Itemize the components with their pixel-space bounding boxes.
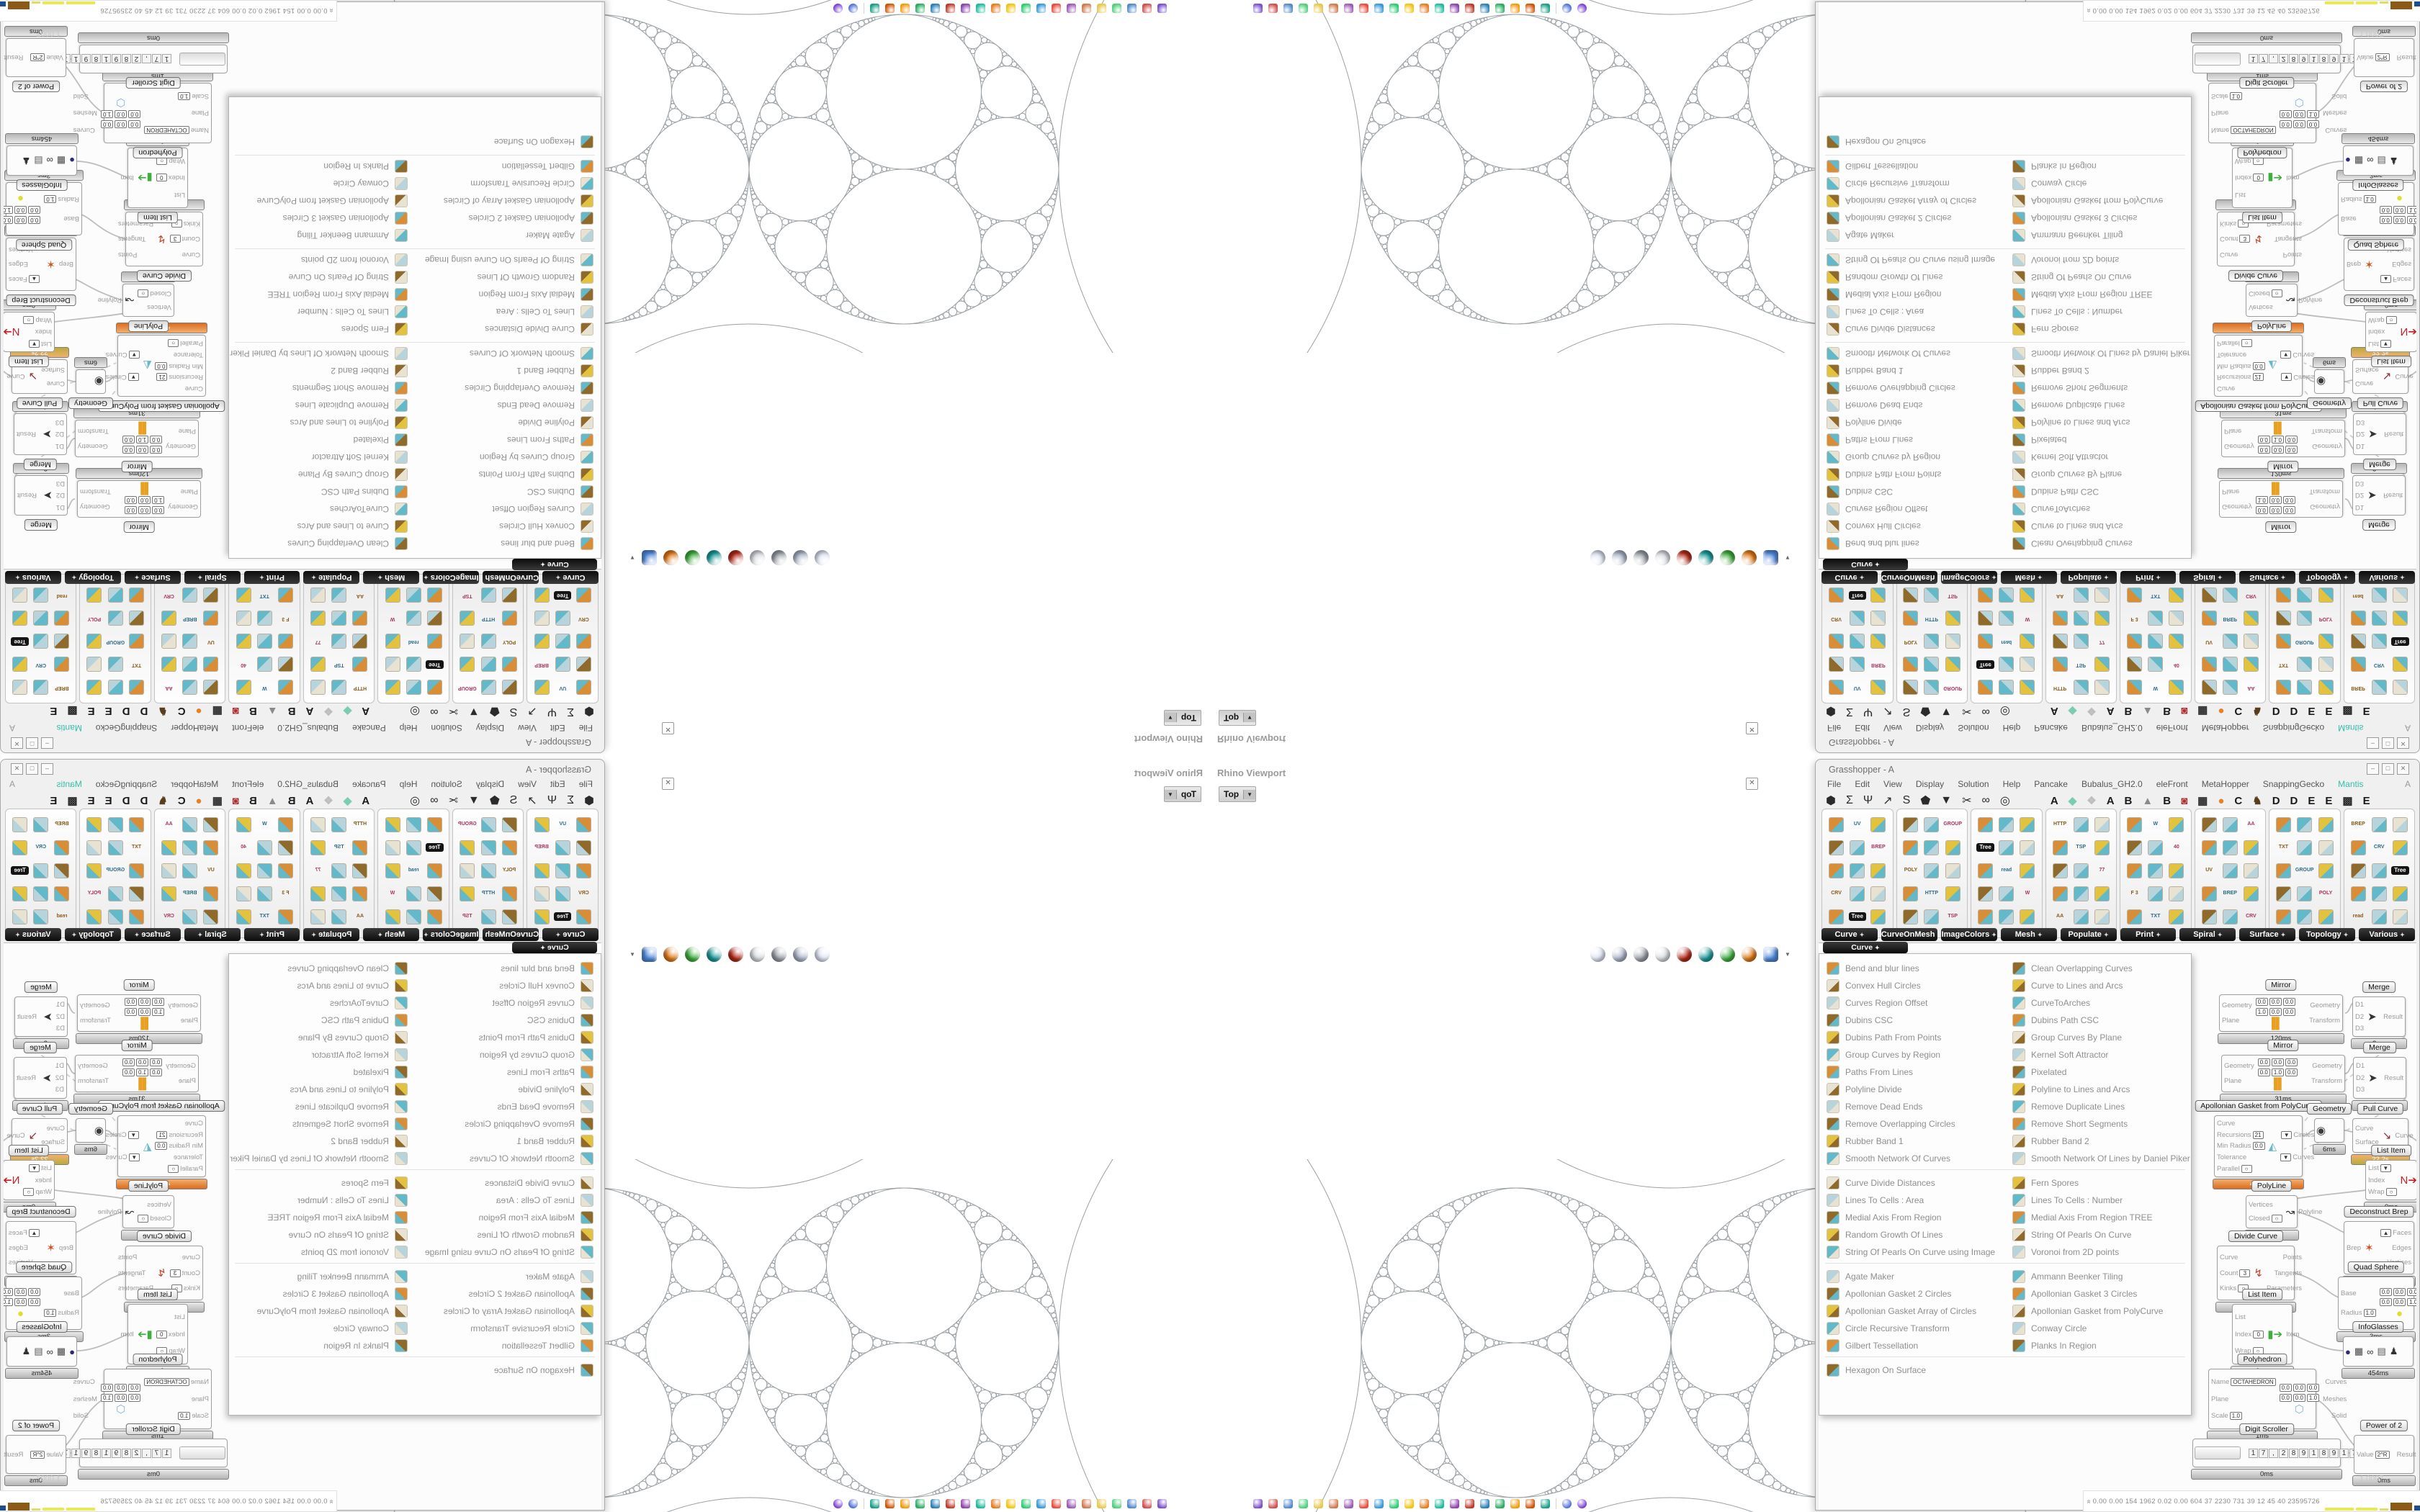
component-body[interactable]: NameOCTAHEDRONPlaneScale1.00.00.00.00.00…: [2208, 83, 2316, 143]
output-param[interactable]: Curves: [2325, 126, 2347, 134]
panel-tile-icon[interactable]: [2372, 909, 2387, 924]
gh-toolbar-icon-0[interactable]: ⬢: [584, 704, 594, 719]
panel-tile-icon[interactable]: [406, 657, 421, 672]
panel-tile-icon[interactable]: [2094, 840, 2110, 855]
panel-tile-icon[interactable]: [2094, 588, 2110, 603]
input-param[interactable]: Count3: [170, 235, 200, 243]
category-icon-5[interactable]: ▲: [267, 706, 278, 718]
input-param[interactable]: Radius1.0: [44, 1309, 79, 1317]
component-merge[interactable]: MergeD1D2D3➤Result2ms: [2352, 996, 2406, 1037]
panel-tile-icon[interactable]: [12, 886, 27, 901]
panel-tile-icon[interactable]: [2074, 634, 2089, 649]
output-param[interactable]: Tangents: [118, 1269, 146, 1277]
component-body[interactable]: ●▦∞▤♟: [6, 1336, 77, 1367]
xyz-value[interactable]: 0.0: [136, 446, 148, 454]
component-label[interactable]: Divide Curve: [137, 1230, 192, 1242]
tab-surface[interactable]: Surface ✦: [2239, 928, 2295, 941]
menu-item[interactable]: Conway Circle: [2012, 175, 2192, 192]
menu-item[interactable]: Paths From Lines: [413, 1063, 593, 1081]
category-icon-12[interactable]: D: [140, 706, 148, 718]
panel-tile-text[interactable]: F 3: [281, 615, 290, 622]
menu-edit[interactable]: Edit: [550, 723, 565, 733]
panel-tile-text[interactable]: UV: [207, 638, 215, 645]
panel-tile-icon[interactable]: [2202, 817, 2217, 832]
taskbar-app-icon-10[interactable]: [1404, 4, 1414, 13]
xyz-value[interactable]: 0.0: [14, 207, 27, 215]
panel-tile-icon[interactable]: [2276, 863, 2291, 878]
input-param[interactable]: Geometry: [166, 1062, 196, 1070]
panel-tile-icon[interactable]: [2393, 886, 2408, 901]
param-value[interactable]: OCTAHEDRON: [144, 1378, 189, 1386]
panel-tile-icon[interactable]: [1903, 817, 1918, 832]
xyz-value[interactable]: 0.0: [2269, 507, 2282, 515]
component-body[interactable]: GeometryPlane0.00.00.01.00.00.0▐▌Geometr…: [77, 480, 201, 518]
category-icon-15[interactable]: E: [2325, 795, 2332, 807]
menu-item[interactable]: Remove Overlapping Circles: [413, 379, 593, 397]
category-icon-8[interactable]: ▦: [2197, 794, 2208, 807]
tab-topology[interactable]: Topology ✦: [65, 571, 121, 584]
component-label[interactable]: Apollonian Gasket from PolyCurve: [2195, 400, 2322, 412]
taskbar-end-icon-1[interactable]: [833, 1499, 843, 1508]
menu-item[interactable]: Circle Recursive Transform: [1827, 175, 2007, 192]
menu-item[interactable]: Smooth Network Of Lines by Daniel Piker: [2012, 345, 2192, 362]
component-label[interactable]: Apollonian Gasket from PolyCurve: [2195, 1100, 2322, 1112]
panel-tile-icon[interactable]: [385, 909, 400, 924]
component-panel-group-3[interactable]: HTTPTSP77AA: [2045, 574, 2117, 703]
grey-cylinder-icon[interactable]: [1633, 947, 1649, 962]
tab-various[interactable]: Various ✦: [2359, 571, 2415, 584]
menu-item[interactable]: Curves Region Offset: [413, 500, 593, 518]
panel-tile-icon[interactable]: [2169, 909, 2184, 924]
taskbar-app-icon-18[interactable]: [885, 1499, 895, 1508]
tab-various[interactable]: Various ✦: [5, 928, 61, 941]
panel-tile-icon[interactable]: [33, 611, 48, 626]
panel-tile-icon[interactable]: [1924, 817, 1939, 832]
panel-tile-icon[interactable]: [331, 588, 346, 603]
panel-tile-icon[interactable]: [1903, 909, 1918, 924]
taskbar-app-icon-10[interactable]: [1006, 4, 1016, 13]
panel-tile-text[interactable]: POLY: [502, 638, 516, 645]
category-icon-8[interactable]: ▦: [212, 705, 223, 718]
panel-tile-icon[interactable]: [385, 863, 400, 878]
component-label[interactable]: Power of 2: [2360, 1420, 2408, 1431]
panel-tile-icon[interactable]: [12, 588, 27, 603]
panel-tile-icon[interactable]: [278, 863, 293, 878]
panel-tile-icon[interactable]: [257, 886, 272, 901]
xyz-value[interactable]: 1.0: [2307, 111, 2319, 119]
input-param[interactable]: Geometry: [2222, 503, 2252, 510]
component-label[interactable]: List Item: [138, 212, 178, 223]
component-panel-group-2[interactable]: TreereadW: [378, 574, 450, 703]
input-param[interactable]: Recursions21: [155, 1131, 203, 1139]
xyz-value[interactable]: 0.0: [152, 507, 164, 515]
output-param[interactable]: ▼Circles: [106, 373, 139, 381]
panel-tile-icon[interactable]: [2244, 863, 2259, 878]
category-icon-1[interactable]: ◆: [344, 705, 352, 718]
menu-item[interactable]: Apollonian Gasket 3 Circles: [2012, 1285, 2192, 1302]
input-param[interactable]: Geometry: [2224, 442, 2254, 450]
panel-tile-icon[interactable]: [108, 657, 123, 672]
panel-tile-icon[interactable]: [2223, 634, 2238, 649]
panel-tile-icon[interactable]: [1870, 611, 1886, 626]
menu-item[interactable]: Curve Divide Distances: [1827, 320, 2007, 338]
gh-toolbar-icon-9[interactable]: ◎: [410, 704, 420, 719]
input-param[interactable]: Radius1.0: [2341, 195, 2376, 203]
panel-tile-text[interactable]: AA: [165, 821, 174, 828]
output-param[interactable]: Result: [17, 431, 36, 438]
panel-tile-icon[interactable]: [161, 611, 176, 626]
output-param[interactable]: Geometry: [2310, 503, 2340, 510]
panel-tile-text[interactable]: BREP: [534, 844, 549, 851]
panel-tile-text[interactable]: HTTP: [353, 684, 367, 691]
category-icon-2[interactable]: ❖: [2087, 705, 2096, 718]
panel-tile-text[interactable]: 40: [2173, 844, 2180, 851]
input-param[interactable]: Closed○: [2249, 1215, 2282, 1223]
component-panel-group-5[interactable]: AAUVBREPCRV: [154, 574, 226, 703]
infoglasses-icon-4[interactable]: ♟: [22, 1346, 31, 1357]
panel-tile-icon[interactable]: [2276, 611, 2291, 626]
taskbar-app-icon-9[interactable]: [1021, 4, 1031, 13]
panel-tile-text[interactable]: read: [2352, 913, 2365, 920]
panel-tile-text[interactable]: GROUP: [105, 867, 125, 874]
menu-item[interactable]: Bend and blur lines: [1827, 535, 2007, 552]
menu-item[interactable]: Fern Spores: [228, 1174, 408, 1192]
param-value[interactable]: 21: [156, 1131, 167, 1139]
menu-item[interactable]: Medial Axis From Region: [413, 286, 593, 303]
component-label[interactable]: Quad Sphere: [2348, 1261, 2404, 1273]
panel-tile-icon[interactable]: [2318, 909, 2334, 924]
infoglasses-icon-0[interactable]: ●: [69, 156, 75, 166]
component-body[interactable]: CurveRecursions21Min Radius0.0ToleranceP…: [117, 1115, 206, 1177]
input-param[interactable]: Base: [44, 215, 79, 222]
menu-bubalus-gh2-0[interactable]: Bubalus_GH2.0: [2081, 779, 2143, 789]
taskbar-app-icon-0[interactable]: [1253, 1499, 1263, 1508]
input-param[interactable]: List▼: [2368, 340, 2397, 348]
component-label[interactable]: Pull Curve: [2357, 1103, 2403, 1115]
menu-item[interactable]: String Of Pearls On Curve using Image: [413, 1243, 593, 1261]
infoglasses-icon-1[interactable]: ▦: [2354, 155, 2363, 166]
param-value[interactable]: ▼: [2281, 1131, 2292, 1139]
panel-tile-icon[interactable]: [33, 680, 48, 696]
menu-metahopper[interactable]: MetaHopper: [2202, 723, 2249, 733]
menu-item[interactable]: Paths From Lines: [413, 431, 593, 449]
component-label[interactable]: Mirror: [2267, 461, 2298, 472]
output-param[interactable]: Edges: [9, 261, 28, 269]
component-body[interactable]: D1D2D3➤Result: [2353, 1057, 2406, 1099]
panel-tile-icon[interactable]: [310, 680, 326, 696]
menu-pancake[interactable]: Pancake: [2034, 779, 2068, 789]
menu-help[interactable]: Help: [2003, 723, 2021, 733]
component-polyhedron[interactable]: PolyhedronNameOCTAHEDRONPlaneScale1.00.0…: [104, 1369, 212, 1429]
output-param[interactable]: ▼Curves: [106, 351, 140, 359]
component-geometry[interactable]: Geometry◉6ms: [2314, 1118, 2344, 1143]
output-param[interactable]: Curve: [2395, 373, 2413, 381]
dropdown-header[interactable]: Curve ✦: [512, 942, 597, 953]
panel-tile-text[interactable]: GROUP: [1942, 684, 1963, 691]
chevron-down-icon[interactable]: ▼: [1243, 790, 1255, 799]
xyz-value[interactable]: 1.0: [2256, 497, 2268, 505]
panel-tile-icon[interactable]: [2276, 817, 2291, 832]
taskbar-app-icon-16[interactable]: [1495, 1499, 1505, 1508]
menu-item[interactable]: Group Curves by Region: [413, 1046, 593, 1063]
panel-close-icon[interactable]: ✕: [1746, 778, 1758, 790]
panel-tile-icon[interactable]: [182, 817, 197, 832]
panel-close-icon[interactable]: ✕: [662, 722, 674, 734]
panel-tile-icon[interactable]: [2020, 657, 2035, 672]
tab-various[interactable]: Various ✦: [2359, 928, 2415, 941]
component-merge[interactable]: MergeD1D2D3➤Result2ms: [2352, 475, 2406, 516]
xyz-value[interactable]: 0.0: [28, 1288, 40, 1296]
gh-toolbar-icon-3[interactable]: ↗: [527, 793, 537, 808]
menu-item[interactable]: Dubins Path From Points: [1827, 466, 2007, 483]
component-label[interactable]: Quad Sphere: [2348, 239, 2404, 251]
category-icon-7[interactable]: ◙: [2181, 706, 2187, 718]
component-power-of-2[interactable]: Power of 2Value2^RResult0ms: [2354, 1435, 2414, 1474]
panel-tile-icon[interactable]: [2169, 588, 2184, 603]
panel-tile-icon[interactable]: [2297, 657, 2312, 672]
taskbar-app-icon-5[interactable]: [1082, 1499, 1091, 1508]
gh-toolbar-icon-8[interactable]: ∞: [430, 705, 438, 718]
panel-tile-text[interactable]: UV: [558, 821, 567, 828]
panel-tile-icon[interactable]: [2169, 611, 2184, 626]
panel-tile-icon[interactable]: [481, 840, 496, 855]
panel-tile-icon[interactable]: [2351, 863, 2366, 878]
component-label[interactable]: Mirror: [121, 461, 152, 472]
component-body[interactable]: VerticesClosed○↝Polyline: [122, 284, 174, 317]
gh-toolbar-icon-5[interactable]: ⬟: [490, 704, 500, 719]
menu-item[interactable]: Convex Hull Circles: [413, 977, 593, 994]
panel-tile-text[interactable]: UV: [207, 867, 215, 874]
menu-metahopper[interactable]: MetaHopper: [171, 723, 218, 733]
input-param[interactable]: Curve: [2220, 251, 2250, 258]
menu-item[interactable]: Gilbert Tessellation: [413, 158, 593, 175]
menu-item[interactable]: Remove Duplicate Lines: [2012, 1098, 2192, 1115]
xyz-value[interactable]: 0.0: [101, 121, 113, 129]
panel-tile-icon[interactable]: [33, 909, 48, 924]
panel-tile-icon[interactable]: [427, 909, 442, 924]
xyz-value[interactable]: 0.0: [2407, 1288, 2416, 1296]
menu-item[interactable]: Kernel Soft Attractor: [2012, 449, 2192, 466]
category-icon-0[interactable]: A: [2051, 795, 2058, 807]
input-param[interactable]: Radius1.0: [2341, 1309, 2376, 1317]
panel-tile-icon[interactable]: [1903, 611, 1918, 626]
xyz-value[interactable]: 0.0: [2280, 121, 2292, 129]
category-icon-11[interactable]: ♞: [2252, 794, 2262, 807]
param-value[interactable]: 1.0: [2230, 1412, 2242, 1420]
menu-item[interactable]: Fern Spores: [2012, 1174, 2192, 1192]
viewport-tab-top[interactable]: Top▼: [1219, 710, 1256, 726]
panel-tile-icon[interactable]: [310, 886, 326, 901]
xyz-value[interactable]: 0.0: [128, 1394, 140, 1402]
orange-ball-icon[interactable]: [663, 551, 678, 566]
component-label[interactable]: List Item: [2371, 356, 2411, 367]
menu-item[interactable]: Agate Maker: [1827, 227, 2007, 244]
panel-tile-text[interactable]: CRV: [163, 913, 175, 920]
component-label[interactable]: List Item: [138, 1289, 178, 1300]
menu-item[interactable]: Ammann Beenker Tiling: [2012, 227, 2192, 244]
menu-item[interactable]: Apollonian Gasket 2 Circles: [413, 210, 593, 227]
category-icon-3[interactable]: A: [305, 706, 313, 718]
output-param[interactable]: Item: [120, 1331, 133, 1338]
xyz-value[interactable]: 0.0: [122, 446, 135, 454]
menu-item[interactable]: Remove Duplicate Lines: [2012, 397, 2192, 414]
input-param[interactable]: Index: [2368, 1176, 2397, 1184]
component-polyline[interactable]: PolyLineVerticesClosed○↝Polyline0ms: [2246, 1195, 2298, 1228]
digit[interactable]: ,: [142, 1449, 151, 1458]
component-panel-group-0[interactable]: UVBREPCRVTree: [527, 809, 599, 938]
component-body[interactable]: CurveRecursions21Min Radius0.0ToleranceP…: [2214, 335, 2303, 397]
output-param[interactable]: Meshes: [73, 109, 97, 117]
menu-item[interactable]: Ammann Beenker Tiling: [228, 227, 408, 244]
taskbar-app-icon-3[interactable]: [1112, 4, 1121, 13]
menu-mantis[interactable]: Mantis: [2338, 779, 2363, 789]
panel-tile-text[interactable]: BREP: [1870, 661, 1886, 668]
panel-tile-icon[interactable]: [352, 634, 367, 649]
xyz-value[interactable]: 0.0: [2407, 217, 2416, 225]
wires-icon[interactable]: [793, 551, 808, 566]
panel-tile-icon[interactable]: [2393, 680, 2408, 696]
menu-item[interactable]: Curves Region Offset: [1827, 994, 2007, 1012]
menu-item[interactable]: Smooth Network Of Lines by Daniel Piker: [228, 1150, 408, 1167]
component-label[interactable]: InfoGlasses: [16, 1321, 67, 1333]
panel-tile-icon[interactable]: [502, 886, 517, 901]
panel-tile-text[interactable]: W: [261, 821, 268, 828]
menu-item[interactable]: Remove Dead Ends: [1827, 1098, 2007, 1115]
component-label[interactable]: Geometry: [2307, 1103, 2352, 1115]
panel-tile-icon[interactable]: [1978, 680, 1993, 696]
menu-item[interactable]: String Of Pearls On Curve using Image: [1827, 1243, 2007, 1261]
taskbar-app-icon-11[interactable]: [991, 4, 1000, 13]
param-value[interactable]: 0.0: [155, 362, 167, 370]
panel-tile-text[interactable]: W: [2152, 821, 2159, 828]
menu-item[interactable]: Hexagon On Surface: [1827, 133, 2007, 150]
panel-tile-text[interactable]: POLY: [1904, 638, 1918, 645]
input-param[interactable]: D2: [2356, 431, 2365, 438]
category-icon-6[interactable]: B: [249, 706, 257, 718]
panel-tile-icon[interactable]: [2169, 680, 2184, 696]
gh-toolbar-icon-2[interactable]: Ψ: [1863, 705, 1873, 718]
panel-tile-icon[interactable]: [331, 863, 346, 878]
taskbar-app-icon-11[interactable]: [991, 1499, 1000, 1508]
param-value[interactable]: 2^R: [2375, 1451, 2390, 1459]
component-panel-group-0[interactable]: UVBREPCRVTree: [1821, 574, 1894, 703]
menu-item[interactable]: Bend and blur lines: [413, 535, 593, 552]
panel-tile-text[interactable]: GROUP: [1942, 821, 1963, 828]
menu-file[interactable]: File: [579, 723, 593, 733]
tab-print[interactable]: Print ✦: [2120, 571, 2177, 584]
panel-tile-text[interactable]: W: [261, 684, 268, 691]
panel-tile-text[interactable]: CRV: [2245, 913, 2257, 920]
component-body[interactable]: Value2^RResult: [6, 1435, 66, 1474]
panel-tile-icon[interactable]: [2148, 863, 2163, 878]
panel-tile-icon[interactable]: [86, 634, 102, 649]
component-mirror[interactable]: MirrorGeometryPlane0.00.00.01.00.00.0▐▌G…: [2219, 480, 2343, 518]
menu-file[interactable]: File: [579, 779, 593, 789]
taskbar-app-icon-0[interactable]: [1253, 4, 1263, 13]
param-value[interactable]: 3: [2239, 1269, 2250, 1277]
input-param[interactable]: Tolerance: [2217, 351, 2265, 359]
gh-toolbar-icon-2[interactable]: Ψ: [1863, 794, 1873, 807]
panel-tile-icon[interactable]: [2127, 657, 2142, 672]
tab-curveonmesh[interactable]: CurveOnMesh ✦: [483, 928, 539, 941]
component-label[interactable]: List Item: [2371, 1145, 2411, 1156]
panel-tile-icon[interactable]: [54, 611, 69, 626]
digit[interactable]: 8: [2319, 55, 2329, 64]
panel-tile-text[interactable]: 77: [315, 638, 322, 645]
panel-tile-text[interactable]: POLY: [1904, 867, 1918, 874]
param-value[interactable]: ○: [2272, 289, 2282, 297]
menu-item[interactable]: Apollonian Gasket 3 Circles: [228, 210, 408, 227]
digit[interactable]: 9: [112, 1449, 121, 1458]
green-pin-icon[interactable]: [685, 551, 700, 566]
panel-tile-icon[interactable]: [2297, 680, 2312, 696]
component-label[interactable]: Polyhedron: [133, 1354, 182, 1365]
xyz-value[interactable]: 1.0: [2256, 1008, 2268, 1016]
menu-item[interactable]: Curve to Lines and Arcs: [228, 518, 408, 535]
menu-pancake[interactable]: Pancake: [352, 779, 386, 789]
category-icon-13[interactable]: D: [122, 706, 130, 718]
panel-tile-text[interactable]: W: [2025, 615, 2031, 622]
taskbar-app-icon-5[interactable]: [1329, 4, 1338, 13]
panel-tile-icon[interactable]: [2393, 657, 2408, 672]
category-icon-1[interactable]: ◆: [2069, 794, 2077, 807]
tab-curveonmesh[interactable]: CurveOnMesh ✦: [1881, 571, 1937, 584]
xyz-value[interactable]: 0.0: [138, 497, 151, 505]
menu-item[interactable]: Apollonian Gasket 3 Circles: [2012, 210, 2192, 227]
input-param[interactable]: Index0: [156, 1331, 185, 1338]
component-label[interactable]: Power of 2: [12, 81, 60, 92]
panel-tile-icon[interactable]: [2053, 657, 2068, 672]
input-param[interactable]: D1: [2356, 442, 2365, 450]
param-value[interactable]: ○: [168, 1165, 179, 1173]
category-icon-4[interactable]: B: [2125, 706, 2133, 718]
component-panel-group-5[interactable]: AAUVBREPCRV: [2195, 574, 2267, 703]
category-icon-16[interactable]: ▩: [2342, 794, 2352, 807]
red-cylinder-icon[interactable]: [1677, 551, 1692, 566]
menu-item[interactable]: Apollonian Gasket from PolyCurve: [2012, 192, 2192, 210]
panel-tile-icon[interactable]: [203, 657, 218, 672]
menu-snappinggecko[interactable]: SnappingGecko: [2263, 723, 2324, 733]
panel-tile-icon[interactable]: [2053, 634, 2068, 649]
panel-tile-icon[interactable]: [1829, 863, 1844, 878]
component-body[interactable]: D1D2D3➤Result: [14, 1057, 67, 1099]
xyz-value[interactable]: 0.0: [128, 1384, 140, 1392]
digit[interactable]: 7: [152, 55, 161, 64]
menu-item[interactable]: Ammann Beenker Tiling: [2012, 1268, 2192, 1285]
param-value[interactable]: 3: [2239, 235, 2250, 243]
panel-tile-icon[interactable]: [203, 817, 218, 832]
digit[interactable]: 9: [2329, 1449, 2339, 1458]
input-param[interactable]: List: [2235, 191, 2264, 199]
category-icon-17[interactable]: E: [2363, 706, 2370, 718]
panel-tile-text[interactable]: HTTP: [2053, 821, 2067, 828]
infoglasses-icon-3[interactable]: ▤: [34, 155, 42, 166]
component-label[interactable]: Merge: [24, 1042, 57, 1053]
panel-tile-icon[interactable]: [54, 863, 69, 878]
panel-tile-icon[interactable]: [2372, 886, 2387, 901]
panel-tile-text[interactable]: 77: [315, 867, 322, 874]
menu-elefront[interactable]: eleFront: [2156, 723, 2188, 733]
param-value[interactable]: OCTAHEDRON: [144, 126, 189, 134]
xyz-value[interactable]: 0.0: [2393, 217, 2406, 225]
panel-tile-icon[interactable]: [33, 634, 48, 649]
panel-tile-icon[interactable]: [2223, 909, 2238, 924]
xyz-value[interactable]: 1.0: [136, 436, 148, 444]
menu-file[interactable]: File: [1827, 723, 1841, 733]
component-label[interactable]: Merge: [2362, 519, 2396, 531]
component-merge[interactable]: MergeD1D2D3➤Result1ms: [2353, 413, 2406, 455]
panel-tile-icon[interactable]: [1978, 863, 1993, 878]
